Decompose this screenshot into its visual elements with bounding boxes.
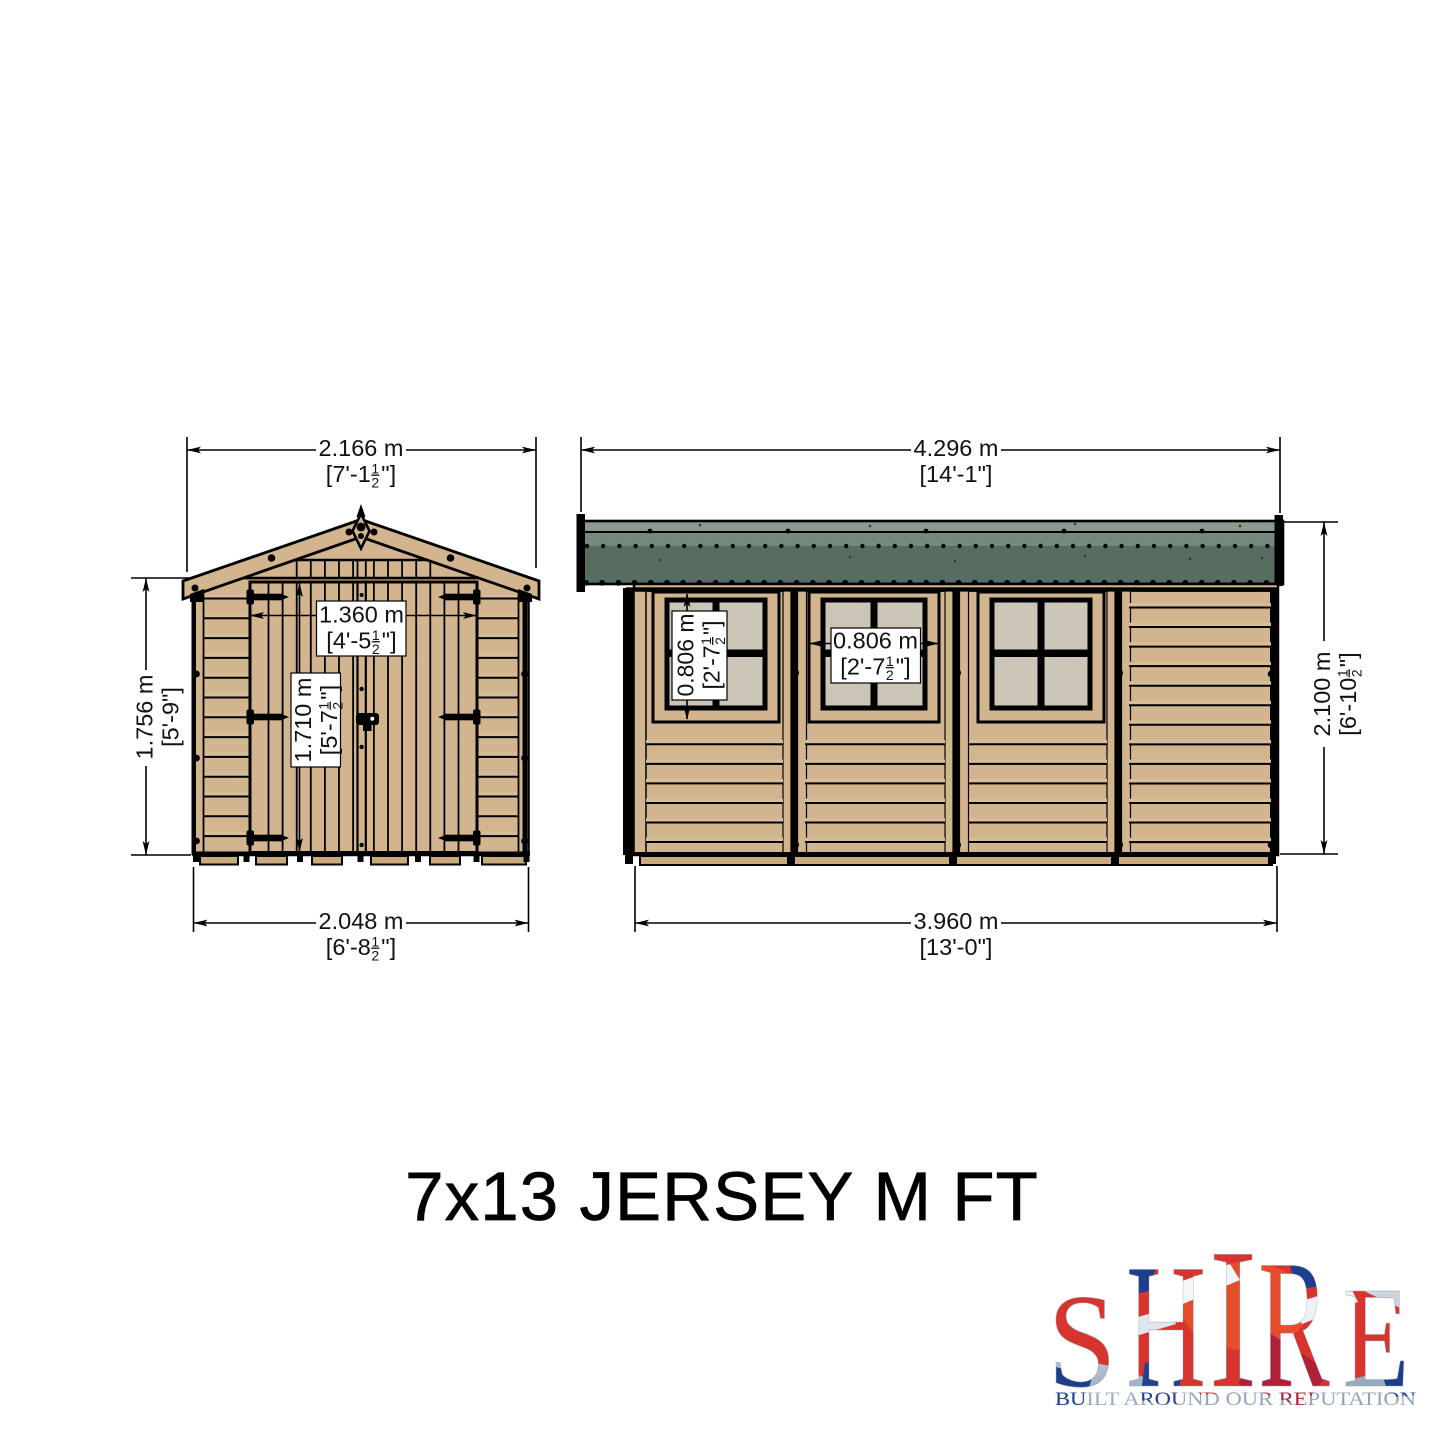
svg-text:[13'-0"]: [13'-0"] [920,934,993,960]
svg-text:2.048 m: 2.048 m [319,908,404,934]
svg-text:[5'-9"]: [5'-9"] [158,687,184,747]
svg-text:R: R [1258,1222,1330,1426]
svg-text:7x13 JERSEY M FT: 7x13 JERSEY M FT [405,1158,1039,1235]
svg-text:[6'-10: [6'-10 [1335,678,1361,736]
svg-text:0.806 m: 0.806 m [833,628,918,654]
svg-text:2: 2 [886,667,894,683]
svg-text:[2'-7: [2'-7 [699,645,725,689]
svg-text:"]: "] [381,461,396,487]
svg-text:2.100 m: 2.100 m [1309,652,1335,737]
svg-text:E: E [1343,1257,1409,1418]
svg-text:2: 2 [371,948,379,964]
svg-text:[5'-7: [5'-7 [316,710,342,755]
svg-text:"]: "] [316,685,342,700]
svg-text:"]: "] [1335,652,1361,667]
svg-text:2: 2 [330,702,346,710]
svg-text:1.360 m: 1.360 m [319,602,404,628]
svg-text:"]: "] [896,654,911,680]
svg-text:"]: "] [699,620,725,635]
svg-text:[14'-1"]: [14'-1"] [920,461,993,487]
svg-text:H: H [1126,1229,1206,1426]
svg-text:1.710 m: 1.710 m [290,678,316,763]
svg-text:1.756 m: 1.756 m [132,675,158,760]
svg-text:I: I [1209,1207,1257,1430]
svg-text:3.960 m: 3.960 m [914,908,999,934]
svg-text:[7'-1: [7'-1 [326,461,371,487]
svg-text:4.296 m: 4.296 m [914,435,999,461]
svg-text:"]: "] [381,934,396,960]
svg-text:"]: "] [382,628,397,654]
svg-text:2: 2 [1349,669,1365,677]
svg-text:[6'-8: [6'-8 [326,934,371,960]
svg-text:[2'-7: [2'-7 [840,654,885,680]
svg-text:2.166 m: 2.166 m [319,435,404,461]
svg-text:2: 2 [712,637,728,645]
svg-text:2: 2 [371,475,379,491]
svg-text:2: 2 [372,641,380,657]
svg-text:[4'-5: [4'-5 [326,628,371,654]
svg-text:0.806 m: 0.806 m [673,613,699,696]
svg-text:S: S [1048,1266,1117,1415]
